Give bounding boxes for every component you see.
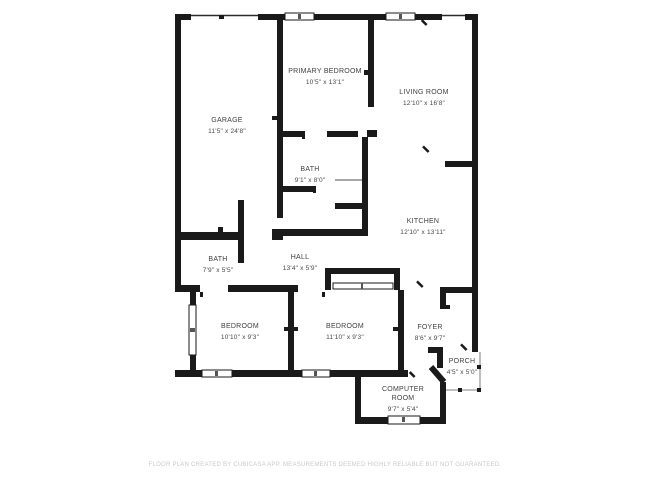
door-swing-marks: [409, 19, 468, 378]
porch-outline: [446, 352, 480, 390]
floorplan-canvas: GARAGE 11'5" x 24'8" PRIMARY BEDROOM 10'…: [0, 0, 650, 488]
walls-group: [175, 14, 478, 424]
footer-disclaimer: FLOOR PLAN CREATED BY CUBICASA APP. MEAS…: [0, 462, 650, 468]
diagonal-wall: [431, 367, 444, 382]
floorplan-drawing: [0, 0, 650, 488]
windows-group: [189, 13, 420, 424]
wall-ticks-group: [177, 15, 481, 392]
